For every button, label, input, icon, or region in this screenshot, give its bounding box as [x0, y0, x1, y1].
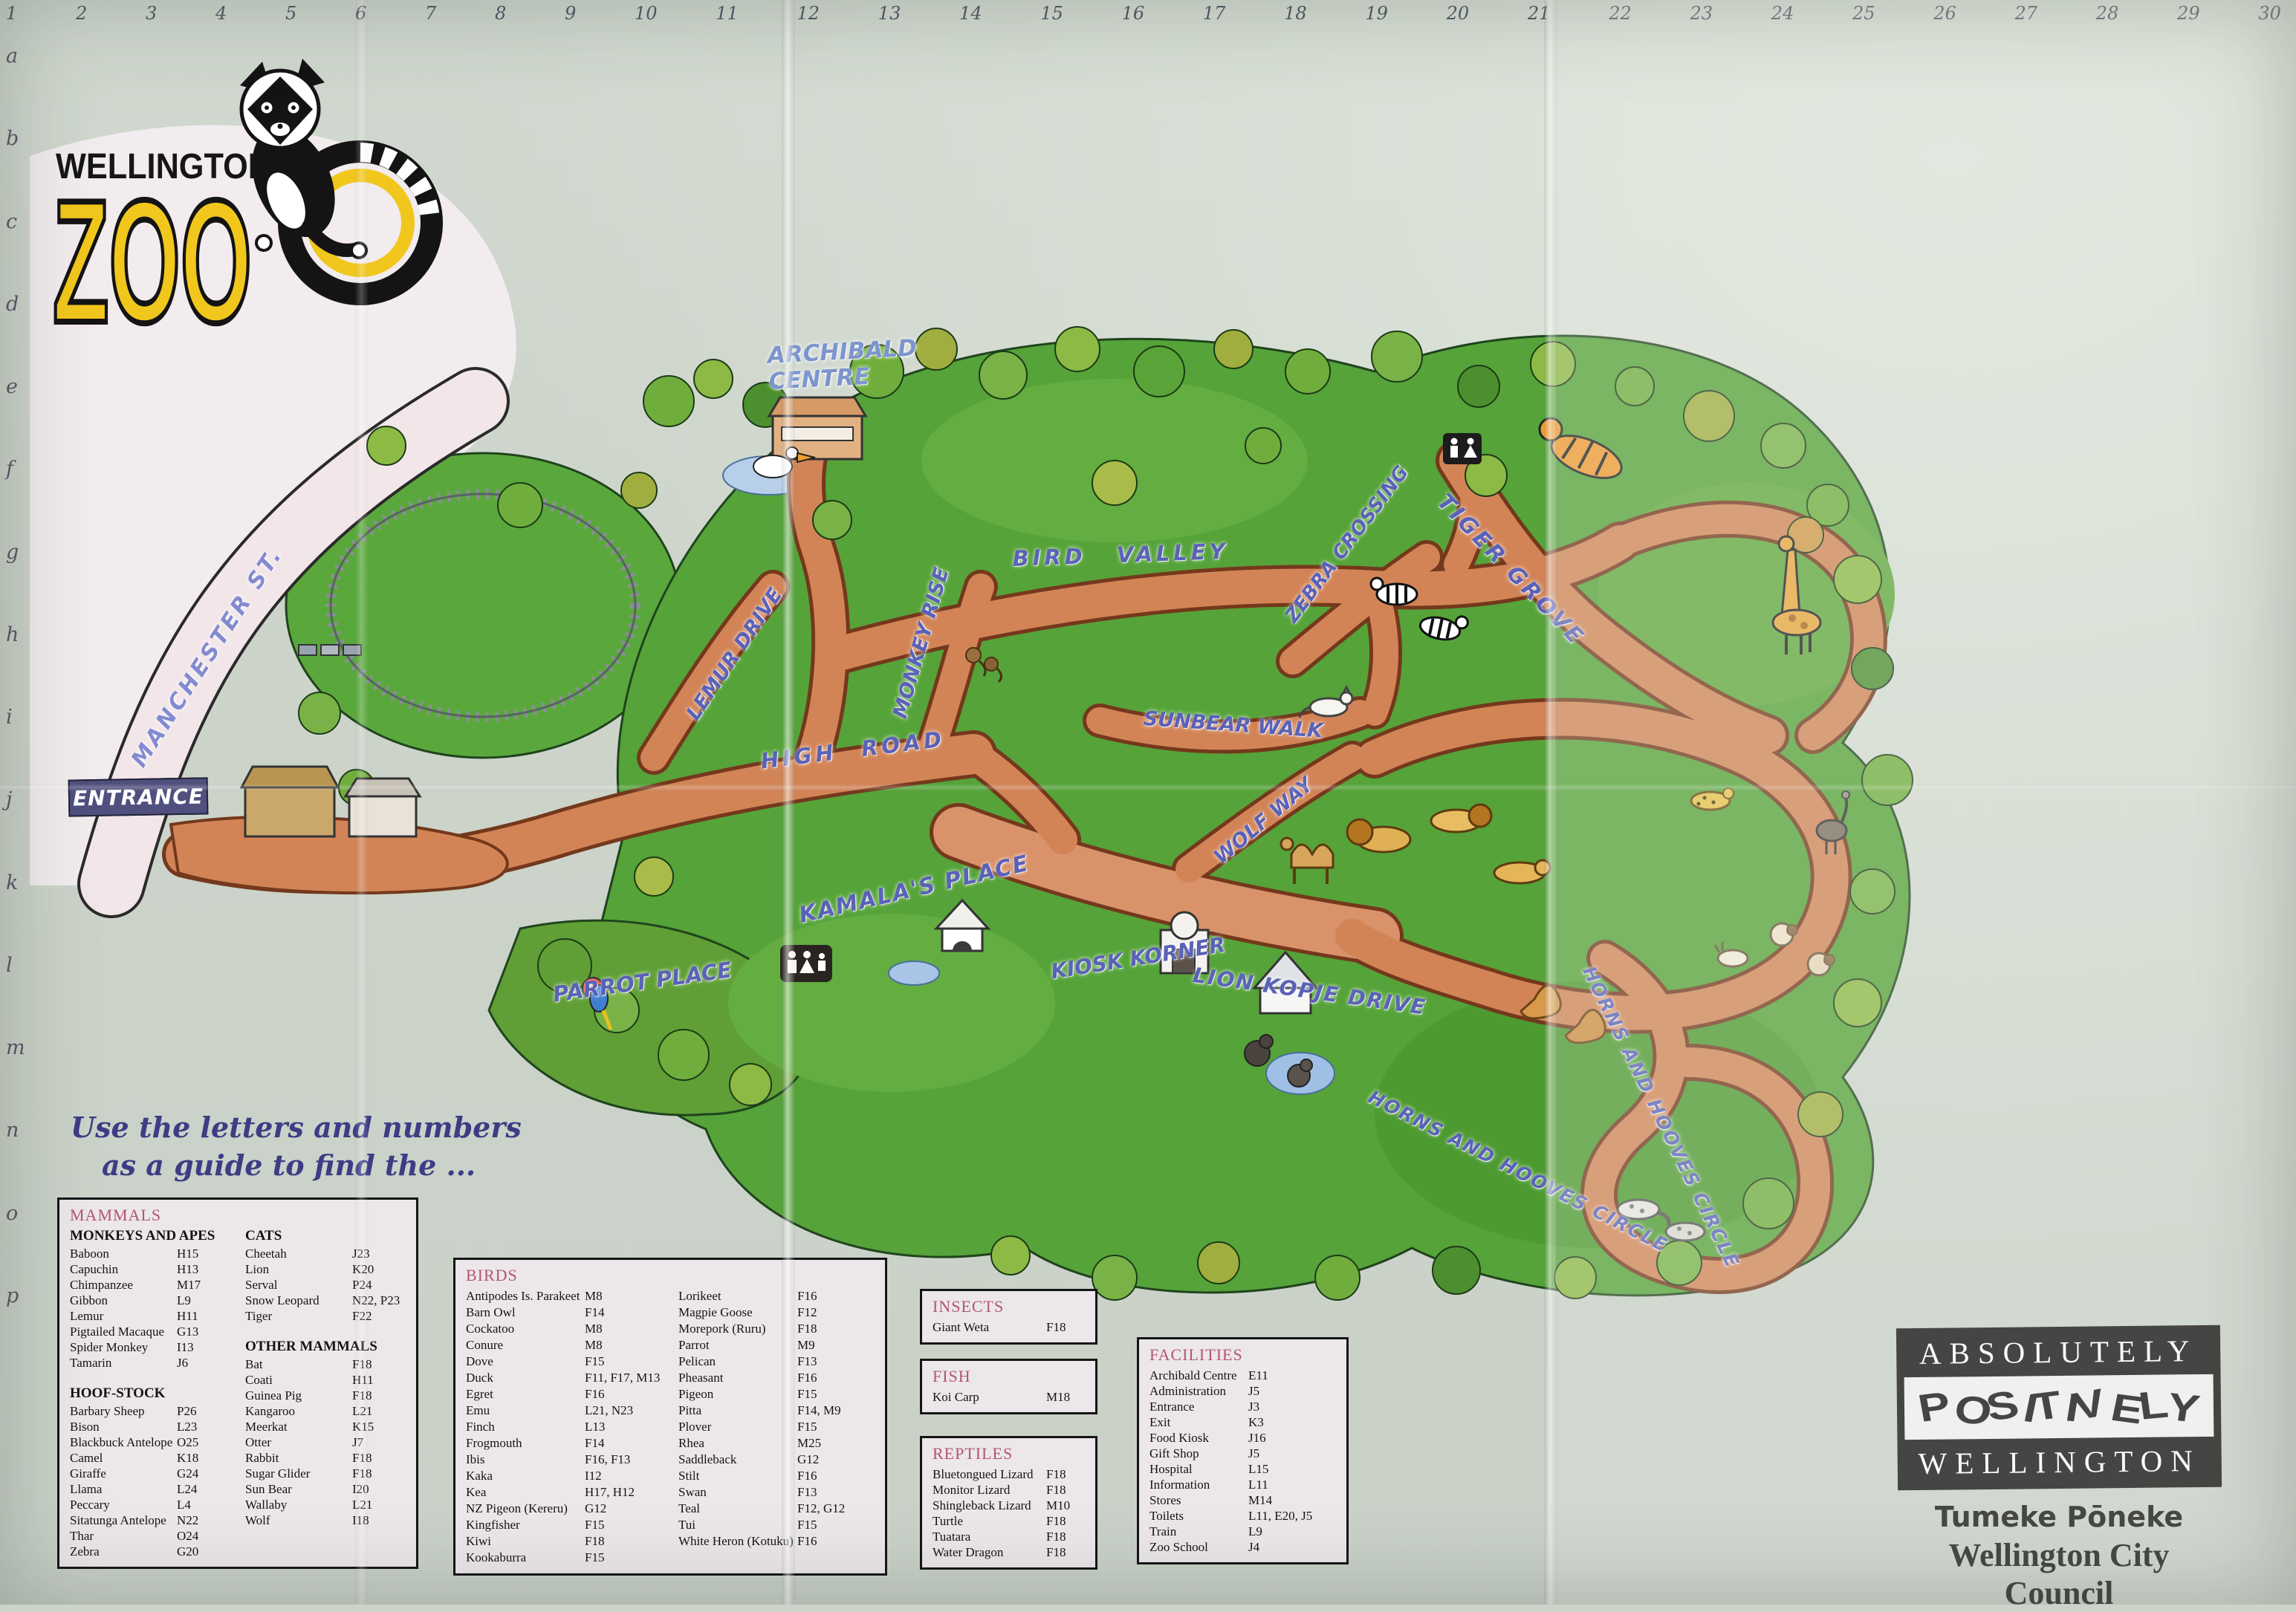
grid-number: 17: [1203, 3, 1226, 24]
grid-number: 15: [1040, 3, 1063, 24]
birds-list-col2: LorikeetF16Magpie GooseF12Morepork (Ruru…: [678, 1288, 875, 1566]
archibald-centre-building: [769, 397, 866, 459]
legend-row: Giant WetaF18: [933, 1319, 1085, 1335]
legend-row: EntranceJ3: [1149, 1399, 1336, 1414]
grid-letter: a: [6, 45, 25, 68]
legend-row: BaboonH15: [70, 1246, 230, 1261]
legend-row: Barbary SheepP26: [70, 1403, 230, 1419]
legend-row: Zoo SchoolJ4: [1149, 1539, 1336, 1555]
legend-facilities: FACILITIES Archibald CentreE11Administra…: [1137, 1337, 1349, 1564]
grid-letter: g: [6, 541, 25, 564]
legend-row: DoveF15: [466, 1353, 662, 1370]
grid-number: 19: [1365, 3, 1388, 24]
legend-row: Barn OwlF14: [466, 1304, 662, 1321]
grid-letter: e: [6, 375, 25, 398]
grid-number: 5: [285, 3, 296, 24]
grid-number: 21: [1528, 3, 1551, 24]
legend-row: ServalP24: [245, 1277, 406, 1293]
legend-row: Spider MonkeyI13: [70, 1339, 230, 1355]
legend-row: StoresM14: [1149, 1492, 1336, 1508]
grid-number: 3: [146, 3, 157, 24]
legend-row: SwanF13: [678, 1484, 875, 1501]
brand-line-wellington: WELLINGTON: [1898, 1443, 2222, 1482]
legend-birds-title: BIRDS: [466, 1266, 875, 1285]
legend-row: Guinea PigF18: [245, 1388, 406, 1403]
grid-number: 26: [1933, 3, 1956, 24]
legend-fish: FISH Koi CarpM18: [920, 1359, 1097, 1414]
grid-letter: m: [6, 1036, 25, 1059]
legend-row: KookaburraF15: [466, 1550, 662, 1566]
legend-row: AdministrationJ5: [1149, 1383, 1336, 1399]
grid-letter: c: [6, 210, 25, 233]
zoo-map-page: 1234567891011121314151617181920212223242…: [0, 0, 2296, 1605]
legend-insects: INSECTS Giant WetaF18: [920, 1289, 1097, 1345]
legend-row: Food KioskJ16: [1149, 1430, 1336, 1446]
lemur-icon: [236, 59, 432, 294]
legend-fish-title: FISH: [933, 1367, 1085, 1386]
fish-list: Koi CarpM18: [933, 1389, 1085, 1405]
legend-row: TurtleF18: [933, 1513, 1085, 1529]
wellington-zoo-logo: WELLINGTON ZOO: [41, 56, 487, 360]
grid-letter: f: [6, 458, 25, 481]
legend-row: KeaH17, H12: [466, 1484, 662, 1501]
legend-row: TuataraF18: [933, 1529, 1085, 1544]
grid-letter: k: [6, 871, 25, 894]
grid-number: 6: [355, 3, 366, 24]
grid-number: 4: [215, 3, 227, 24]
legend-row: ChimpanzeeM17: [70, 1277, 230, 1293]
legend-row: StiltF16: [678, 1468, 875, 1484]
legend-row: ZebraG20: [70, 1544, 230, 1559]
council-name: Wellington City Council: [1897, 1536, 2221, 1612]
legend-row: ExitK3: [1149, 1414, 1336, 1430]
legend-row: PigeonF15: [678, 1386, 875, 1403]
legend-row: KiwiF18: [466, 1533, 662, 1550]
legend-row: PheasantF16: [678, 1370, 875, 1386]
legend-row: TamarinJ6: [70, 1355, 230, 1371]
legend-birds: BIRDS Antipodes Is. ParakeetM8Barn OwlF1…: [453, 1258, 887, 1576]
legend-row: InformationL11: [1149, 1477, 1336, 1492]
logo-zoo-text: ZOO: [53, 163, 252, 359]
legend-row: Antipodes Is. ParakeetM8: [466, 1288, 662, 1304]
legend-insects-title: INSECTS: [933, 1297, 1085, 1316]
insects-list: Giant WetaF18: [933, 1319, 1085, 1335]
legend-reptiles: REPTILES Bluetongued LizardF18Monitor Li…: [920, 1436, 1097, 1570]
grid-letter: o: [6, 1202, 25, 1225]
other-mammals-list: BatF18CoatiH11Guinea PigF18KangarooL21Me…: [245, 1356, 406, 1528]
label-archibald-centre: ARCHIBALD CENTRE: [767, 334, 955, 394]
legend-row: EgretF16: [466, 1386, 662, 1403]
legend-row: SaddlebackG12: [678, 1452, 875, 1468]
legend-row: Bluetongued LizardF18: [933, 1466, 1085, 1482]
legend-row: White Heron (Kotuku)F16: [678, 1533, 875, 1550]
wellington-city-council-brand: ABSOLUTELY POSITIVELY WELLINGTON Tumeke …: [1897, 1327, 2221, 1612]
legend-row: HospitalL15: [1149, 1461, 1336, 1477]
birds-list-col1: Antipodes Is. ParakeetM8Barn OwlF14Cocka…: [466, 1288, 662, 1566]
legend-row: PloverF15: [678, 1419, 875, 1435]
legend-row: Snow LeopardN22, P23: [245, 1293, 406, 1308]
legend-row: TharO24: [70, 1528, 230, 1544]
toilets-sign-north: [1443, 433, 1482, 464]
legend-row: LlamaL24: [70, 1481, 230, 1497]
heading-hoof-stock: HOOF-STOCK: [70, 1385, 230, 1402]
legend-row: OtterJ7: [245, 1434, 406, 1450]
legend-row: LionK20: [245, 1261, 406, 1277]
legend-row: CockatooM8: [466, 1321, 662, 1337]
legend-facilities-title: FACILITIES: [1149, 1345, 1336, 1365]
legend-row: KakaI12: [466, 1468, 662, 1484]
toilets-sign-kamala: [780, 945, 832, 982]
absolutely-positively-wellington-logo: ABSOLUTELY POSITIVELY WELLINGTON: [1896, 1325, 2222, 1491]
legend-row: Monitor LizardF18: [933, 1482, 1085, 1498]
legend-reptiles-title: REPTILES: [933, 1444, 1085, 1463]
grid-letter: n: [6, 1119, 25, 1142]
grid-number: 18: [1284, 3, 1307, 24]
grid-number: 11: [716, 3, 739, 24]
legend-row: Sitatunga AntelopeN22: [70, 1512, 230, 1528]
grid-number: 28: [2096, 3, 2119, 24]
reptiles-list: Bluetongued LizardF18Monitor LizardF18Sh…: [933, 1466, 1085, 1560]
legend-row: EmuL21, N23: [466, 1403, 662, 1419]
grid-number: 23: [1690, 3, 1713, 24]
legend-row: PelicanF13: [678, 1353, 875, 1370]
legend-row: FrogmouthF14: [466, 1435, 662, 1452]
heading-other-mammals: OTHER MAMMALS: [245, 1339, 406, 1355]
legend-row: Water DragonF18: [933, 1544, 1085, 1560]
instructions-line2: as a guide to find the ...: [102, 1146, 522, 1184]
facilities-list: Archibald CentreE11AdministrationJ5Entra…: [1149, 1368, 1336, 1555]
grid-number: 27: [2015, 3, 2038, 24]
legend-row: CapuchinH13: [70, 1261, 230, 1277]
legend-mammals: MAMMALS MONKEYS AND APES BaboonH15Capuch…: [57, 1197, 418, 1569]
legend-row: LorikeetF16: [678, 1288, 875, 1304]
legend-row: PittaF14, M9: [678, 1403, 875, 1419]
grid-number-row: 1234567891011121314151617181920212223242…: [6, 3, 2281, 24]
grid-number: 14: [959, 3, 982, 24]
legend-row: WolfI18: [245, 1512, 406, 1528]
legend-mammals-title: MAMMALS: [70, 1206, 406, 1225]
grid-number: 24: [1771, 3, 1794, 24]
grid-number: 30: [2258, 3, 2281, 24]
grid-letter: b: [6, 127, 25, 150]
legend-row: Blackbuck AntelopeO25: [70, 1434, 230, 1450]
cats-list: CheetahJ23LionK20ServalP24Snow LeopardN2…: [245, 1246, 406, 1324]
entrance-sign: ENTRANCE: [68, 777, 209, 816]
grid-number: 20: [1447, 3, 1470, 24]
train-illustration: [299, 645, 361, 655]
grid-number: 16: [1122, 3, 1145, 24]
legend-row: GiraffeG24: [70, 1466, 230, 1481]
legend-row: TealF12, G12: [678, 1501, 875, 1517]
grid-letter: h: [6, 623, 25, 646]
grid-number: 9: [565, 3, 576, 24]
legend-row: Magpie GooseF12: [678, 1304, 875, 1321]
legend-row: Sun BearI20: [245, 1481, 406, 1497]
brand-line-absolutely: ABSOLUTELY: [1896, 1333, 2220, 1372]
legend-row: GibbonL9: [70, 1293, 230, 1308]
legend-row: CheetahJ23: [245, 1246, 406, 1261]
legend-row: TuiF15: [678, 1517, 875, 1533]
monkeys-list: BaboonH15CapuchinH13ChimpanzeeM17GibbonL…: [70, 1246, 230, 1371]
legend-row: RabbitF18: [245, 1450, 406, 1466]
brand-tagline: Tumeke Pōneke: [1897, 1501, 2221, 1533]
grid-number: 8: [495, 3, 506, 24]
legend-row: RheaM25: [678, 1435, 875, 1452]
grid-letter: d: [6, 293, 25, 316]
legend-row: MeerkatK15: [245, 1419, 406, 1434]
grid-number: 13: [878, 3, 901, 24]
grid-number: 7: [425, 3, 436, 24]
legend-row: CoatiH11: [245, 1372, 406, 1388]
grid-letter-column: abcdefghijklmnop: [6, 45, 25, 1307]
legend-row: TrainL9: [1149, 1524, 1336, 1539]
legend-row: Morepork (Ruru)F18: [678, 1321, 875, 1337]
legend-row: Koi CarpM18: [933, 1389, 1085, 1405]
legend-row: IbisF16, F13: [466, 1452, 662, 1468]
grid-letter: i: [6, 706, 25, 729]
legend-row: NZ Pigeon (Kereru)G12: [466, 1501, 662, 1517]
legend-instructions: Use the letters and numbers as a guide t…: [71, 1108, 522, 1185]
legend-row: ConureM8: [466, 1337, 662, 1353]
entrance-plaza: [171, 817, 507, 893]
instructions-line1: Use the letters and numbers: [71, 1108, 522, 1146]
grid-number: 25: [1852, 3, 1875, 24]
legend-row: ParrotM9: [678, 1337, 875, 1353]
hoof-stock-list: Barbary SheepP26BisonL23Blackbuck Antelo…: [70, 1403, 230, 1559]
legend-row: DuckF11, F17, M13: [466, 1370, 662, 1386]
legend-row: Sugar GliderF18: [245, 1466, 406, 1481]
entrance-buildings: [241, 767, 420, 836]
grid-letter: l: [6, 954, 25, 977]
legend-row: PeccaryL4: [70, 1497, 230, 1512]
heading-monkeys-and-apes: MONKEYS AND APES: [70, 1228, 230, 1244]
legend-row: FinchL13: [466, 1419, 662, 1435]
grid-number: 2: [76, 3, 87, 24]
legend-row: KangarooL21: [245, 1403, 406, 1419]
heading-cats: CATS: [245, 1228, 406, 1244]
legend-row: WallabyL21: [245, 1497, 406, 1512]
brand-line-positively-band: POSITIVELY: [1904, 1374, 2214, 1440]
legend-row: LemurH11: [70, 1308, 230, 1324]
legend-row: Archibald CentreE11: [1149, 1368, 1336, 1383]
legend-row: TigerF22: [245, 1308, 406, 1324]
grid-letter: j: [6, 788, 25, 811]
grid-letter: p: [6, 1284, 25, 1307]
legend-row: KingfisherF15: [466, 1517, 662, 1533]
grid-number: 29: [2177, 3, 2200, 24]
grid-number: 12: [797, 3, 820, 24]
legend-row: CamelK18: [70, 1450, 230, 1466]
legend-row: Pigtailed MacaqueG13: [70, 1324, 230, 1339]
legend-row: Shingleback LizardM10: [933, 1498, 1085, 1513]
grid-number: 22: [1609, 3, 1632, 24]
legend-row: BatF18: [245, 1356, 406, 1372]
brand-line-positively: POSITIVELY: [1916, 1379, 2202, 1436]
legend-row: Gift ShopJ5: [1149, 1446, 1336, 1461]
duck-pond: [889, 961, 939, 985]
grid-number: 1: [6, 3, 17, 24]
legend-row: BisonL23: [70, 1419, 230, 1434]
legend-row: ToiletsL11, E20, J5: [1149, 1508, 1336, 1524]
grid-number: 10: [635, 3, 658, 24]
